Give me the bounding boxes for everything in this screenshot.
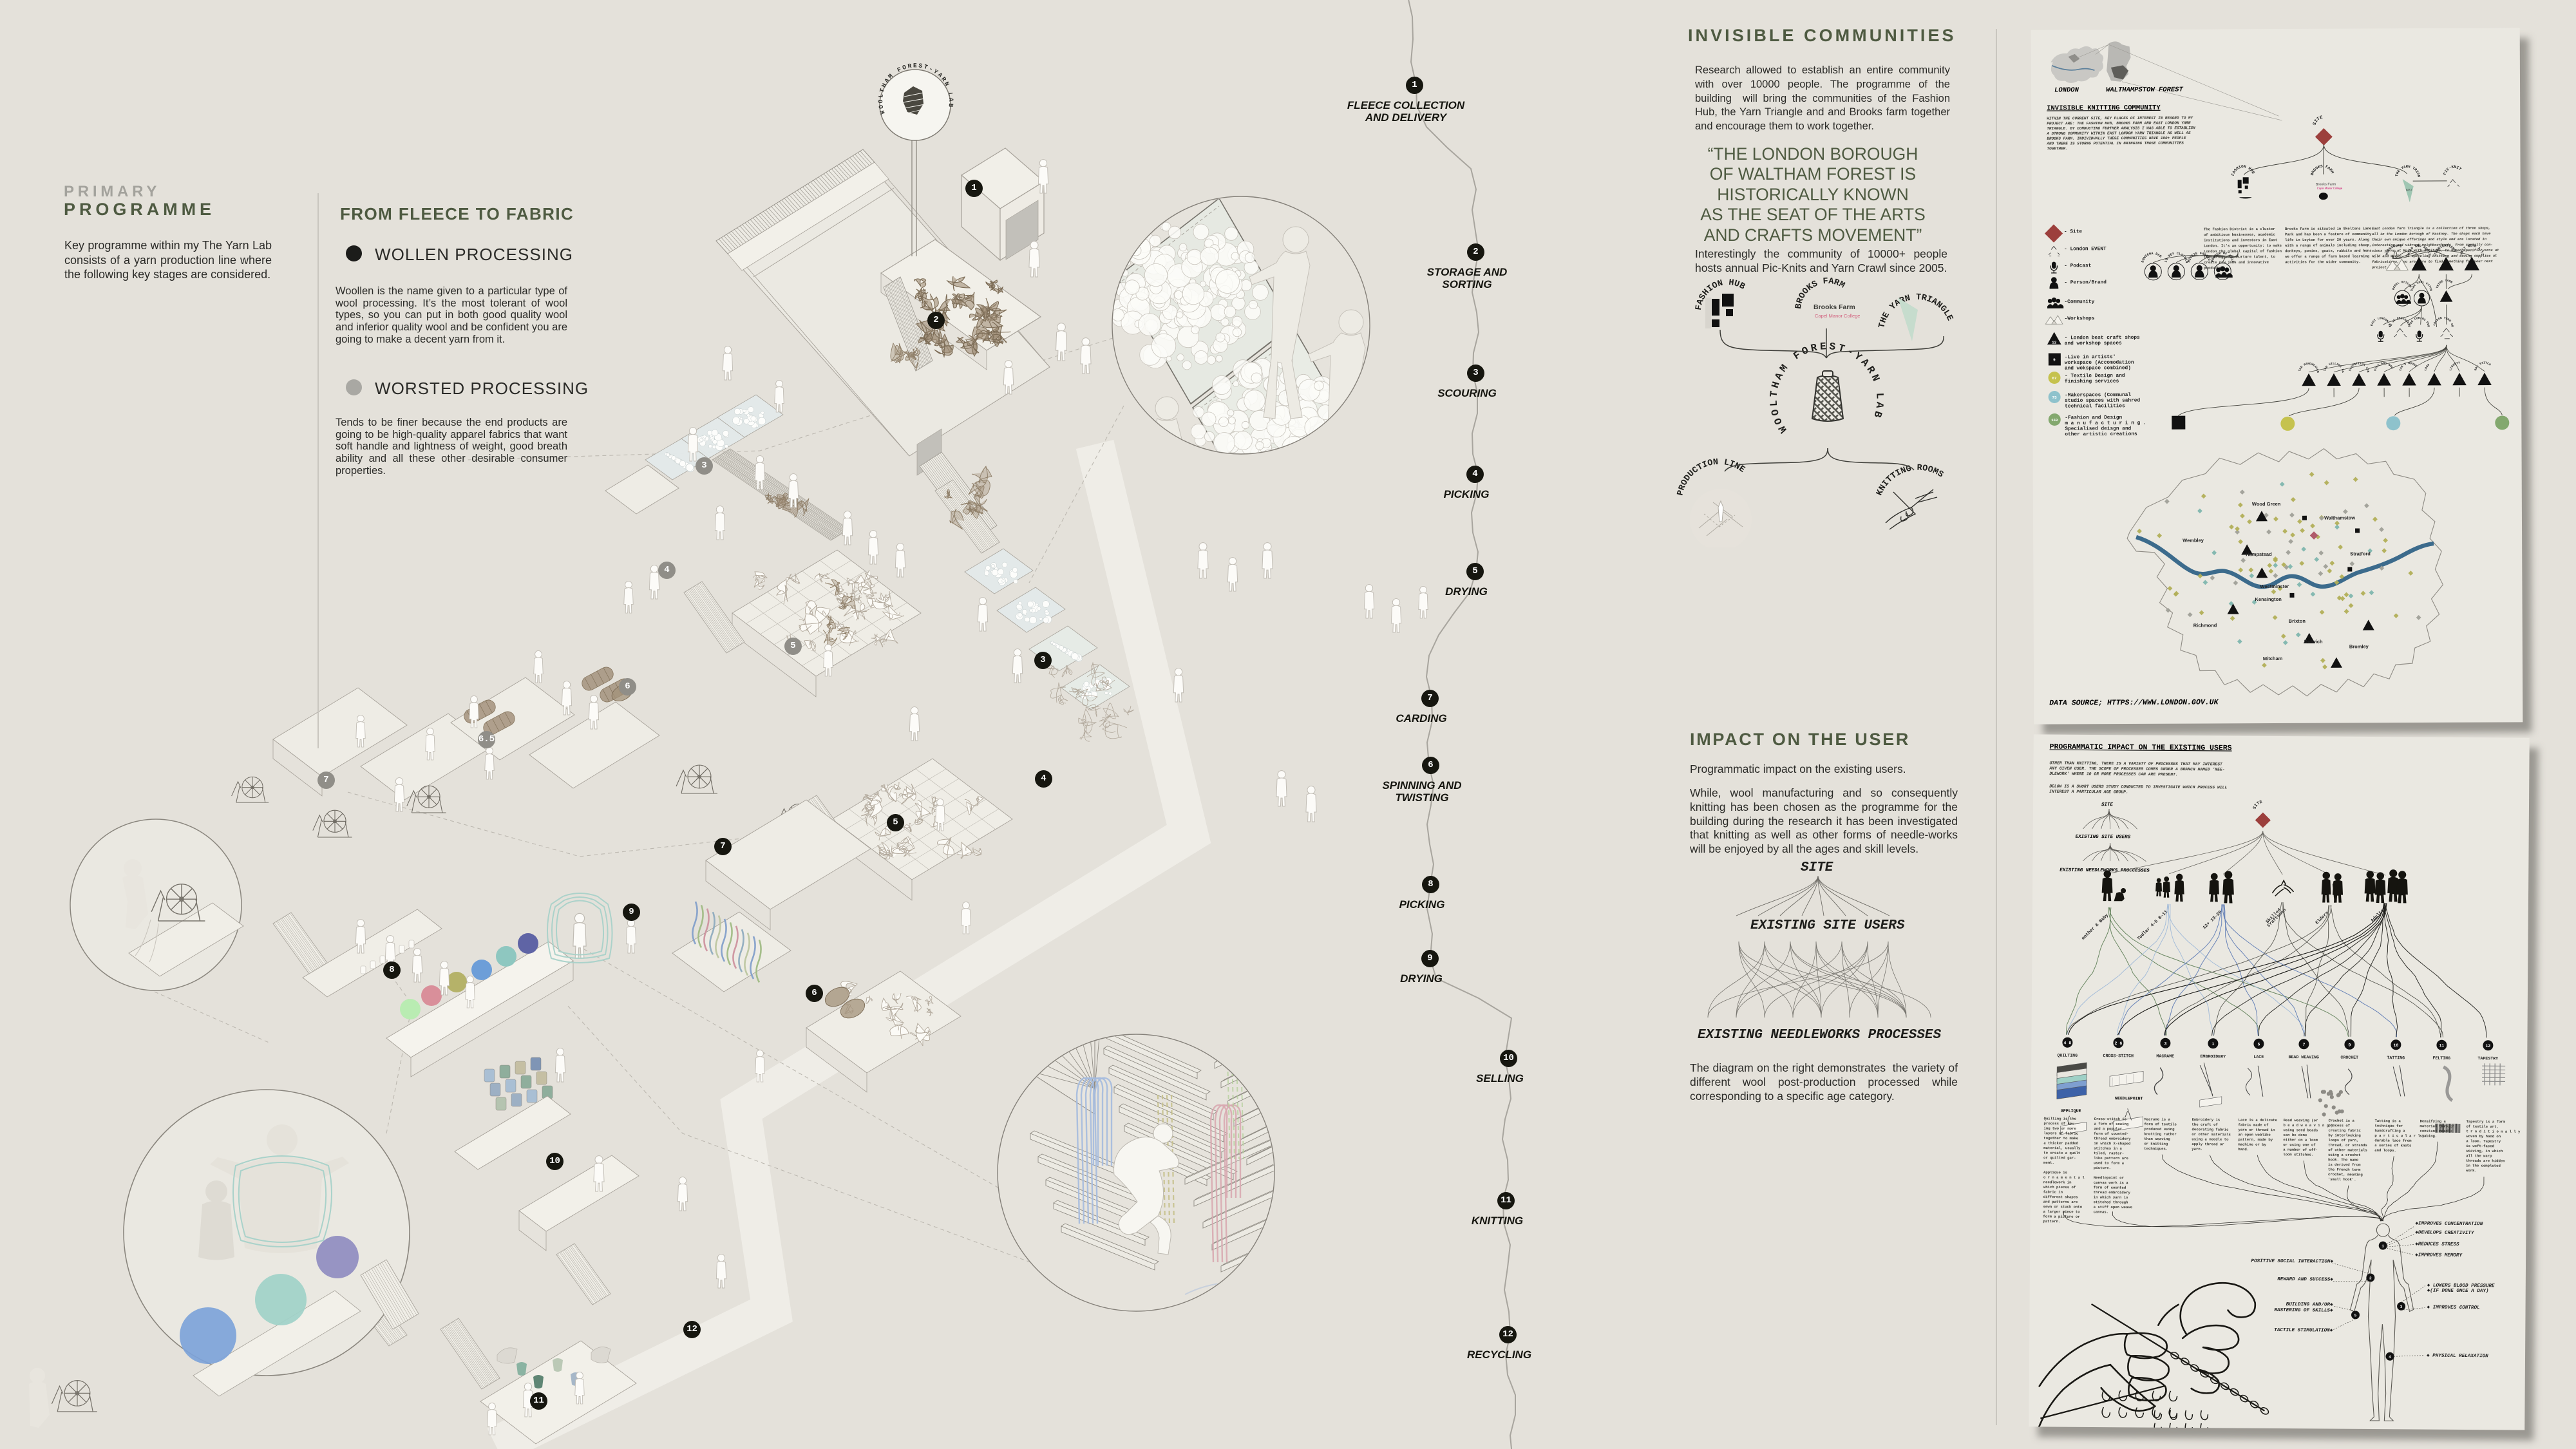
svg-text:Crochet is a: Crochet is a (2329, 1119, 2355, 1123)
svg-text:life in Leyton for over 20 yea: life in Leyton for over 20 years. Along (2285, 238, 2370, 243)
svg-text:12: 12 (2485, 1044, 2490, 1048)
svg-text:hand.: hand. (2238, 1147, 2249, 1151)
svg-text:fabric made of: fabric made of (2239, 1122, 2269, 1127)
svg-text:East London Yarn Triangle is a: East London Yarn Triangle is a collectio… (2372, 227, 2490, 231)
svg-text:the craft of: the craft of (2192, 1122, 2219, 1127)
svg-text:loom stitches.: loom stitches. (2283, 1152, 2313, 1157)
svg-text:FASHION HUB: FASHION HUB (1694, 278, 1747, 311)
svg-text:EXISTING NEEDLEWORKS PROCESSES: EXISTING NEEDLEWORKS PROCESSES (1698, 1028, 1941, 1043)
svg-text:form a picture or: form a picture or (2043, 1214, 2080, 1218)
svg-text:together to make: together to make (2043, 1136, 2078, 1141)
svg-text:12: 12 (2052, 340, 2057, 345)
svg-text:5: 5 (2354, 1313, 2357, 1318)
svg-text:Needlepoint or: Needlepoint or (2094, 1175, 2124, 1180)
svg-text:using a needle to: using a needle to (2192, 1137, 2229, 1141)
svg-text:1: 1 (2382, 1244, 2384, 1249)
svg-text:Quilting is the: Quilting is the (2044, 1116, 2077, 1121)
svg-text:- Textile Design and: - Textile Design and (2065, 374, 2125, 379)
svg-text:can be done: can be done (2283, 1133, 2307, 1137)
svg-text:durable lace from: durable lace from (2374, 1138, 2412, 1142)
svg-text:their own unique offerings and: their own unique offerings and style and… (2372, 238, 2487, 242)
svg-text:SITE: SITE (2252, 800, 2262, 810)
svg-text:67: 67 (2052, 376, 2057, 381)
svg-text:and wokspace combined): and wokspace combined) (2065, 366, 2131, 371)
svg-text:NEEDLEPOINT: NEEDLEPOINT (2115, 1096, 2143, 1101)
svg-text:material, usually: material, usually (2043, 1146, 2081, 1150)
svg-text:is weft-faced: is weft-faced (2466, 1144, 2494, 1148)
svg-text:9: 9 (2053, 357, 2056, 362)
svg-text:Capel Manor College: Capel Manor College (2317, 187, 2343, 190)
svg-text:process of: process of (2329, 1123, 2351, 1128)
svg-text:BROOKS FARM: BROOKS FARM (2310, 164, 2335, 176)
svg-text:a thicker padded: a thicker padded (2043, 1141, 2078, 1145)
svg-text:or other materials: or other materials (2192, 1132, 2231, 1137)
svg-text:decorating fabric: decorating fabric (2192, 1127, 2229, 1132)
svg-text:A STRONG COMMUNITY WITHIN EAST: A STRONG COMMUNITY WITHIN EAST LONDON YA… (2046, 131, 2191, 136)
svg-text:-Workshops: -Workshops (2065, 316, 2095, 321)
svg-text:and workshop spaces: and workshop spaces (2065, 341, 2122, 346)
svg-text:form of counted-: form of counted- (2094, 1132, 2128, 1136)
svg-text:The Fashion District is a clus: The Fashion District is a cluster (2204, 227, 2275, 231)
svg-text:-Fashion and Design: -Fashion and Design (2065, 415, 2122, 421)
svg-text:12+ 13-20: 12+ 13-20 (2202, 910, 2223, 931)
svg-text:WALTHAMPSTOW FOREST: WALTHAMPSTOW FOREST (2106, 86, 2183, 95)
svg-text:in the completed: in the completed (2466, 1163, 2501, 1168)
svg-text:3: 3 (2164, 1041, 2166, 1046)
svg-text:Tatting is a: Tatting is a (2375, 1119, 2401, 1123)
svg-text:needlework in: needlework in (2043, 1180, 2072, 1184)
svg-text:pattern.: pattern. (2043, 1219, 2060, 1224)
svg-text:11: 11 (2439, 1043, 2444, 1048)
svg-text:- Podcast: - Podcast (2064, 263, 2091, 269)
svg-text:of textile art,: of textile art, (2467, 1124, 2499, 1129)
svg-text:INTEREST A PARTICULAR AGE GROU: INTEREST A PARTICULAR AGE GROUP. (2049, 790, 2128, 795)
svg-text:BEAD WEAVING: BEAD WEAVING (2289, 1055, 2320, 1059)
svg-text:all the warp: all the warp (2466, 1153, 2492, 1158)
svg-text:'small hook'.: 'small hook'. (2328, 1177, 2356, 1182)
svg-text:CROSS-STITCH: CROSS-STITCH (2103, 1054, 2134, 1058)
svg-text:- Person/Brand: - Person/Brand (2064, 280, 2107, 285)
svg-text:finishing services: finishing services (2065, 379, 2119, 384)
svg-text:LACE: LACE (2253, 1055, 2264, 1059)
svg-text:stitched through: stitched through (2094, 1200, 2128, 1204)
svg-text:creating fabric: creating fabric (2328, 1128, 2361, 1133)
svg-text:of other materials: of other materials (2328, 1148, 2367, 1152)
svg-text:INVISIBLE KNITTING COMMUNITY: INVISIBLE KNITTING COMMUNITY (2047, 104, 2161, 113)
svg-text:TACTILE STIMULATION◆: TACTILE STIMULATION◆ (2274, 1328, 2333, 1334)
svg-text:activities for the wider commu: activities for the wider community. (2285, 260, 2361, 265)
svg-text:produced using: produced using (2144, 1127, 2175, 1132)
svg-text:canvas.: canvas. (2094, 1209, 2109, 1214)
svg-text:p a r t i c u l a r l y: p a r t i c u l a r l y (2374, 1133, 2425, 1139)
svg-text:Bromley: Bromley (2349, 643, 2369, 649)
svg-text:-Community: -Community (2064, 299, 2094, 305)
svg-text:sewn or stuck onto: sewn or stuck onto (2043, 1204, 2083, 1209)
svg-text:AND THERE IS STORNG POTENTIAL: AND THERE IS STORNG POTENTIAL IN BRINGIN… (2046, 141, 2184, 146)
svg-text:4 8: 4 8 (2064, 1041, 2072, 1045)
svg-text:the French term: the French term (2328, 1168, 2361, 1172)
svg-text:1: 1 (2211, 1042, 2214, 1046)
svg-text:project.: project. (2371, 265, 2389, 269)
svg-text:Brooks Farm is situated in Ske: Brooks Farm is situated in Skeltons Lane (2285, 226, 2372, 231)
svg-text:or using one of: or using one of (2283, 1142, 2316, 1147)
svg-text:we offer a range of farm based: we offer a range of farm based learning (2285, 254, 2370, 259)
svg-text:than weaving: than weaving (2144, 1137, 2170, 1141)
svg-text:QUILTING: QUILTING (2057, 1054, 2078, 1058)
svg-text:with a range of animals includ: with a range of animals including sheep, (2285, 243, 2371, 248)
svg-text:5: 5 (2257, 1042, 2260, 1046)
svg-text:Park and has been a feature of: Park and has been a feature of community (2285, 232, 2372, 237)
svg-text:KNITTING ROOMS: KNITTING ROOMS (1875, 464, 1945, 497)
svg-text:donkeys, ponies, goats, rabbit: donkeys, ponies, goats, rabbits and hens (2285, 249, 2372, 254)
svg-text:crochet, meaning: crochet, meaning (2328, 1172, 2363, 1177)
svg-text:169: 169 (2051, 418, 2058, 422)
svg-text:Wood Green: Wood Green (2252, 501, 2281, 507)
svg-text:Wembley: Wembley (2183, 537, 2204, 543)
svg-text:TATTING: TATTING (2387, 1056, 2405, 1060)
svg-text:of ambitious businesses, acade: of ambitious businesses, academic (2204, 232, 2275, 237)
svg-text:MACRAME: MACRAME (2156, 1054, 2174, 1059)
svg-text:BROOKS FARM. INDIVIDUALLY THES: BROOKS FARM. INDIVIDUALLY THESE COMMUNIT… (2047, 136, 2186, 141)
svg-text:Lace is a delicate: Lace is a delicate (2239, 1118, 2278, 1122)
svg-text:Richmond: Richmond (2193, 622, 2217, 628)
svg-text:REWARD AND SUCCESS◆: REWARD AND SUCCESS◆ (2277, 1277, 2333, 1283)
svg-text:Kensington: Kensington (2255, 596, 2282, 602)
svg-text:a loom. Tapestry: a loom. Tapestry (2466, 1139, 2501, 1143)
svg-text:Stratford: Stratford (2350, 551, 2371, 556)
svg-text:process of sew-: process of sew- (2044, 1121, 2076, 1126)
svg-text:4: 4 (2389, 1355, 2391, 1359)
svg-text:which pieces of: which pieces of (2043, 1185, 2076, 1189)
svg-text:is derived from: is derived from (2328, 1162, 2361, 1167)
svg-text:by interlocking: by interlocking (2328, 1133, 2361, 1137)
svg-text:o r n a m e n t a l: o r n a m e n t a l (2043, 1175, 2085, 1180)
svg-text:DATA SOURCE; HTTPS://WWW.LONDO: DATA SOURCE; HTTPS://WWW.LONDON.GOV.UK (2049, 698, 2219, 707)
svg-text:APPLIQUE: APPLIQUE (2061, 1109, 2081, 1113)
svg-text:RAY STITCH: RAY STITCH (2474, 361, 2492, 372)
svg-text:EAST: EAST (2406, 189, 2412, 192)
svg-text:FELTING: FELTING (2432, 1056, 2450, 1061)
svg-text:thread embroidery: thread embroidery (2094, 1190, 2131, 1195)
svg-text:TOGETHER.: TOGETHER. (2047, 146, 2067, 151)
svg-text:Densifying a: Densifying a (2420, 1119, 2447, 1124)
svg-text:form of counted: form of counted (2094, 1185, 2126, 1189)
svg-text:and loops.: and loops. (2374, 1148, 2396, 1153)
svg-text:and a popular: and a popular (2094, 1126, 2122, 1131)
svg-text:Applique is: Applique is (2043, 1170, 2068, 1175)
svg-text:- London best craft shops: - London best craft shops (2065, 336, 2140, 341)
svg-text:a stiff open weave: a stiff open weave (2094, 1205, 2133, 1209)
svg-text:7: 7 (2302, 1043, 2305, 1047)
svg-text:constant needle: constant needle (2420, 1129, 2452, 1133)
svg-text:PROJECT ARE: THE FASHION HUB,: PROJECT ARE: THE FASHION HUB, BROOKS FAR… (2047, 120, 2191, 126)
svg-text:◆REDUCES STRESS: ◆REDUCES STRESS (2415, 1242, 2459, 1247)
svg-text:weaving, in which: weaving, in which (2466, 1149, 2503, 1153)
svg-text:a form of sewing: a form of sewing (2094, 1122, 2129, 1126)
svg-text:ing two or more: ing two or more (2043, 1126, 2076, 1131)
svg-text:Westminster: Westminster (2260, 583, 2289, 589)
svg-text:EXISTING SITE USERS: EXISTING SITE USERS (2076, 835, 2131, 840)
svg-text:LONDON: LONDON (2054, 86, 2079, 94)
svg-text:◆IMPROVES MEMORY: ◆IMPROVES MEMORY (2415, 1253, 2463, 1258)
svg-text:woven by hand on: woven by hand on (2466, 1134, 2501, 1139)
svg-text:BUILDING AND/OR◆: BUILDING AND/OR◆ (2286, 1302, 2333, 1308)
svg-text:-Makerspaces (Communal: -Makerspaces (Communal (2065, 393, 2131, 398)
svg-text:Brooks Farm: Brooks Farm (1814, 303, 1855, 311)
svg-text:apply thread or: apply thread or (2192, 1142, 2224, 1146)
svg-text:& 12 DESIGNERS: & 12 DESIGNERS (2389, 316, 2411, 328)
svg-text:in which yarn is: in which yarn is (2094, 1195, 2128, 1200)
svg-text:- London EVENT: - London EVENT (2064, 247, 2107, 252)
svg-text:◆(IF DONE ONCE A DAY): ◆(IF DONE ONCE A DAY) (2427, 1289, 2489, 1294)
svg-text:75: 75 (2052, 395, 2058, 400)
svg-text:institutions and investors in: institutions and investors in East (2204, 238, 2277, 242)
svg-text:knotting rather: knotting rather (2144, 1132, 2176, 1136)
svg-text:TAPESTRY: TAPESTRY (2477, 1056, 2498, 1061)
svg-text:used to form a: used to form a (2094, 1160, 2125, 1165)
svg-text:a series of knots: a series of knots (2374, 1143, 2412, 1148)
svg-text:picture.: picture. (2094, 1166, 2111, 1170)
svg-text:layers of fabric: layers of fabric (2043, 1131, 2078, 1135)
svg-text:Mitcham: Mitcham (2263, 656, 2283, 661)
svg-text:stabing.: stabing. (2420, 1133, 2437, 1138)
svg-text:canvas work is a: canvas work is a (2094, 1180, 2128, 1185)
svg-text:LOOP: LOOP (2423, 363, 2430, 372)
svg-text:MASTERING OF SKILLS◆: MASTERING OF SKILLS◆ (2273, 1308, 2333, 1314)
svg-text:stitches in a: stitches in a (2094, 1146, 2122, 1151)
svg-text:EMBROIDERY: EMBROIDERY (2200, 1054, 2226, 1059)
svg-text:- Site: - Site (2064, 229, 2082, 234)
svg-text:thread embroidery: thread embroidery (2094, 1136, 2131, 1141)
svg-text:tiled, raster-: tiled, raster- (2094, 1151, 2124, 1155)
svg-text:other artistic creations: other artistic creations (2065, 432, 2137, 437)
svg-text:IAN'S HOUSE: IAN'S HOUSE (2398, 361, 2418, 372)
svg-text:using a crochet: using a crochet (2328, 1153, 2360, 1157)
svg-text:TRIANGLE. BY CONDUCTING FURTHE: TRIANGLE. BY CONDUCTING FURTHER ANALYSIS… (2047, 126, 2195, 131)
svg-text:to create a quilt: to create a quilt (2043, 1151, 2080, 1155)
svg-text:all in the London borough of H: all in the London borough of Hackney. Th… (2372, 232, 2490, 236)
svg-text:yarn.: yarn. (2192, 1147, 2202, 1151)
svg-text:CROCHET: CROCHET (2340, 1056, 2358, 1060)
svg-text:◆DEVELOPS CREATIVITY: ◆DEVELOPS CREATIVITY (2415, 1230, 2475, 1236)
svg-text:an open weblike: an open weblike (2238, 1132, 2271, 1137)
svg-text:POSITIVE SOCIAL INTERACTION◆: POSITIVE SOCIAL INTERACTION◆ (2251, 1259, 2333, 1265)
svg-text:handcrafting a: handcrafting a (2374, 1128, 2405, 1133)
svg-text:◆ PHYSICAL RELAXATION: ◆ PHYSICAL RELAXATION (2427, 1354, 2488, 1359)
svg-text:Wild and Wooly, to upcycling k: Wild and Wooly, to upcycling knitting an… (2372, 254, 2497, 259)
svg-text:PROGRAMMATIC IMPACT ON THE EXI: PROGRAMMATIC IMPACT ON THE EXISTING USER… (2050, 743, 2232, 752)
svg-text:2 6: 2 6 (2115, 1041, 2123, 1046)
svg-text:FASHION HUB: FASHION HUB (2231, 164, 2256, 176)
svg-text:and patterns are: and patterns are (2043, 1200, 2078, 1204)
svg-text:3: 3 (2400, 1305, 2403, 1309)
svg-text:10: 10 (2393, 1043, 2398, 1048)
svg-text:a larger piece to: a larger piece to (2043, 1209, 2081, 1214)
svg-text:or quilted gar-: or quilted gar- (2043, 1155, 2076, 1160)
svg-text:a number of off-: a number of off- (2283, 1148, 2318, 1152)
svg-text:machine or by: machine or by (2238, 1142, 2266, 1147)
svg-text:techniques.: techniques. (2144, 1146, 2168, 1151)
svg-text:◆ IMPROVES CONTROL: ◆ IMPROVES CONTROL (2427, 1305, 2480, 1311)
svg-text:workspace (Accomodation: workspace (Accomodation (2065, 361, 2134, 366)
svg-text:SITE: SITE (1801, 860, 1833, 875)
svg-text:PIC-KNIT: PIC-KNIT (2443, 165, 2463, 176)
svg-text:in which X-shaped: in which X-shaped (2094, 1141, 2130, 1146)
svg-text:SITE: SITE (2312, 115, 2323, 126)
svg-text:2: 2 (2369, 1276, 2372, 1280)
svg-text:◆IMPROVES CONCENTRATION: ◆IMPROVES CONCENTRATION (2415, 1221, 2483, 1227)
svg-text:fabric in: fabric in (2043, 1189, 2063, 1194)
svg-text:b e a d w e a v i n g ): b e a d w e a v i n g ) (2284, 1123, 2333, 1128)
svg-text:London. It's an opportunity: t: London. It's an opportunity: to make (2204, 243, 2282, 249)
svg-text:Macrame is a: Macrame is a (2145, 1117, 2171, 1122)
svg-text:9: 9 (2348, 1043, 2351, 1047)
svg-text:m a n u f a c t u r i n g .: m a n u f a c t u r i n g . (2065, 421, 2146, 426)
svg-text:SITE: SITE (2101, 802, 2114, 808)
svg-text:EXISTING SITE USERS: EXISTING SITE USERS (1750, 918, 1905, 933)
svg-text:London the global capital of f: London the global capital of fashion (2204, 249, 2282, 254)
svg-text:DLEWORK' WHERE 10 OR MORE PROC: DLEWORK' WHERE 10 OR MORE PROCESSES CAN … (2049, 772, 2177, 777)
svg-text:Brixton: Brixton (2289, 618, 2306, 624)
svg-text:using seed beads: using seed beads (2283, 1128, 2318, 1132)
svg-text:Capel Manor College: Capel Manor College (1815, 313, 1860, 319)
svg-text:technique for: technique for (2375, 1124, 2403, 1128)
svg-text:WITHIN THE CURRENT SITE, KEY P: WITHIN THE CURRENT SITE, KEY PLACES OF I… (2047, 116, 2193, 121)
svg-text:different shapes: different shapes (2043, 1195, 2078, 1199)
svg-text:material through: material through (2420, 1124, 2455, 1128)
svg-text:threads are hidden: threads are hidden (2466, 1159, 2505, 1163)
svg-text:-Live in artists': -Live in artists' (2065, 355, 2116, 360)
svg-text:DUNECHA DAB: DUNECHA DAB (2141, 252, 2162, 263)
svg-text:pattern, made by: pattern, made by (2238, 1137, 2273, 1142)
svg-text:ment.: ment. (2043, 1160, 2054, 1165)
svg-text:loops of yarn,: loops of yarn, (2328, 1138, 2358, 1142)
svg-text:like pattern are: like pattern are (2094, 1156, 2128, 1160)
svg-text:technical facilities: technical facilities (2065, 404, 2125, 409)
svg-text:Cross-stitch is: Cross-stitch is (2094, 1117, 2127, 1121)
svg-text:either on a loom: either on a loom (2283, 1137, 2318, 1142)
svg-text:yarn or thread in: yarn or thread in (2238, 1128, 2275, 1132)
svg-text:thread, or strands: thread, or strands (2328, 1143, 2367, 1148)
svg-text:Walthamstow: Walthamstow (2324, 515, 2355, 520)
svg-text:work.: work. (2466, 1168, 2477, 1173)
svg-text:Embroidery is: Embroidery is (2192, 1117, 2221, 1122)
svg-text:form of textile: form of textile (2145, 1122, 2177, 1126)
svg-text:Specialised deisgn and: Specialised deisgn and (2065, 426, 2131, 431)
svg-text:hook. The name: hook. The name (2328, 1157, 2359, 1162)
svg-text:studio spaces with sahred: studio spaces with sahred (2065, 399, 2140, 404)
svg-text:Bead weaving (or: Bead weaving (or (2284, 1118, 2318, 1122)
svg-text:t r a d i t i o n a l l y: t r a d i t i o n a l l y (2466, 1129, 2521, 1134)
svg-text:or knitting: or knitting (2144, 1142, 2168, 1146)
svg-text:Dulwich: Dulwich (2304, 639, 2323, 645)
svg-text:Tapestry is a form: Tapestry is a form (2467, 1119, 2506, 1124)
svg-text:Hampstead: Hampstead (2246, 551, 2272, 557)
